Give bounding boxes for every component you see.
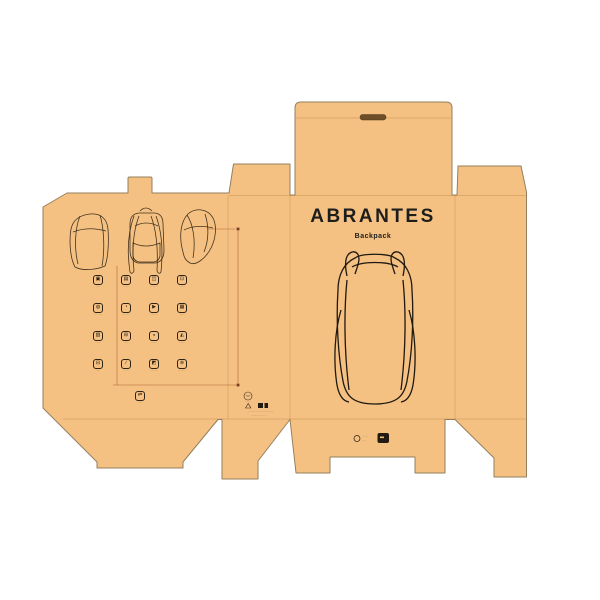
feature-label: ······ bbox=[123, 370, 128, 373]
feature-icon: ∕ bbox=[121, 359, 131, 369]
feature-item: ◒······· bbox=[139, 331, 169, 349]
logo-text-line: ····· bbox=[362, 439, 367, 442]
logo-text-line: ······· bbox=[362, 435, 368, 438]
feature-label: ········· bbox=[150, 314, 158, 317]
feature-label: ····· bbox=[96, 286, 100, 289]
feature-icon: ▦ bbox=[177, 303, 187, 313]
product-subtitle: Backpack bbox=[290, 233, 456, 240]
feature-item: ⇄····· bbox=[125, 391, 155, 409]
feature-label: ······ bbox=[95, 342, 100, 345]
feature-icon: ⊞ bbox=[121, 331, 131, 341]
feature-item: ⊡······· bbox=[167, 275, 197, 293]
brand-title: ABRANTES bbox=[290, 206, 456, 228]
feature-item: ⊟····· bbox=[83, 359, 113, 377]
feature-icon: ▤ bbox=[121, 275, 131, 285]
feature-label: ····· bbox=[124, 342, 128, 345]
feature-label: ········· bbox=[178, 370, 186, 373]
feature-item: ◔········ bbox=[111, 303, 141, 321]
feature-item: ◍·········· bbox=[83, 303, 113, 321]
feature-icon: ◫ bbox=[149, 275, 159, 285]
feature-icon: ◔ bbox=[121, 303, 131, 313]
feature-icon: ⊟ bbox=[93, 359, 103, 369]
feature-item: ◭······ bbox=[167, 331, 197, 349]
feature-item: ▦······· bbox=[167, 303, 197, 321]
feature-item: ▤······ bbox=[111, 275, 141, 293]
feature-item: ▶········· bbox=[139, 303, 169, 321]
callout-dot-bottom bbox=[237, 384, 240, 387]
feature-label: ········ bbox=[151, 370, 158, 373]
barcode-block bbox=[258, 403, 263, 408]
feature-label: ·········· bbox=[94, 314, 102, 317]
feature-icon: ⊛ bbox=[177, 359, 187, 369]
feature-label: ······· bbox=[179, 314, 185, 317]
feature-icon: ◒ bbox=[149, 331, 159, 341]
fine-print-line: ································· bbox=[248, 411, 270, 414]
feature-icon: ▣ bbox=[93, 275, 103, 285]
feature-label: ····· bbox=[96, 370, 100, 373]
feature-label: ······ bbox=[179, 342, 184, 345]
feature-item: ⊞····· bbox=[111, 331, 141, 349]
feature-label: ······· bbox=[179, 286, 185, 289]
dieline-graphic bbox=[0, 0, 600, 600]
feature-icon: ◭ bbox=[177, 331, 187, 341]
packaging-dieline-artboard: ABRANTES Backpack ▣·····▤······◫········… bbox=[0, 0, 600, 600]
feature-item: ∕······ bbox=[111, 359, 141, 377]
feature-label: ········ bbox=[123, 314, 130, 317]
fine-print-line: ··················· bbox=[248, 415, 270, 418]
feature-label: ······ bbox=[123, 286, 128, 289]
feature-icon: ◍ bbox=[93, 303, 103, 313]
feature-item: ◩········ bbox=[139, 359, 169, 377]
callout-dot-top bbox=[237, 228, 240, 231]
feature-item: ▣····· bbox=[83, 275, 113, 293]
feature-icon: ◩ bbox=[149, 359, 159, 369]
feature-label: ····· bbox=[138, 402, 142, 405]
feature-icon: ▶ bbox=[149, 303, 159, 313]
feature-icon: ⊡ bbox=[177, 275, 187, 285]
feature-item: ⊛········· bbox=[167, 359, 197, 377]
feature-label: ········· bbox=[150, 286, 158, 289]
feature-item: ▧······ bbox=[83, 331, 113, 349]
cert-caption: ······· bbox=[242, 401, 253, 404]
feature-icon: ⇄ bbox=[135, 391, 145, 401]
lid-slot bbox=[360, 115, 386, 121]
feature-icon: ▧ bbox=[93, 331, 103, 341]
barcode-block bbox=[265, 403, 269, 408]
feature-label: ······· bbox=[151, 342, 157, 345]
feature-item: ◫········· bbox=[139, 275, 169, 293]
